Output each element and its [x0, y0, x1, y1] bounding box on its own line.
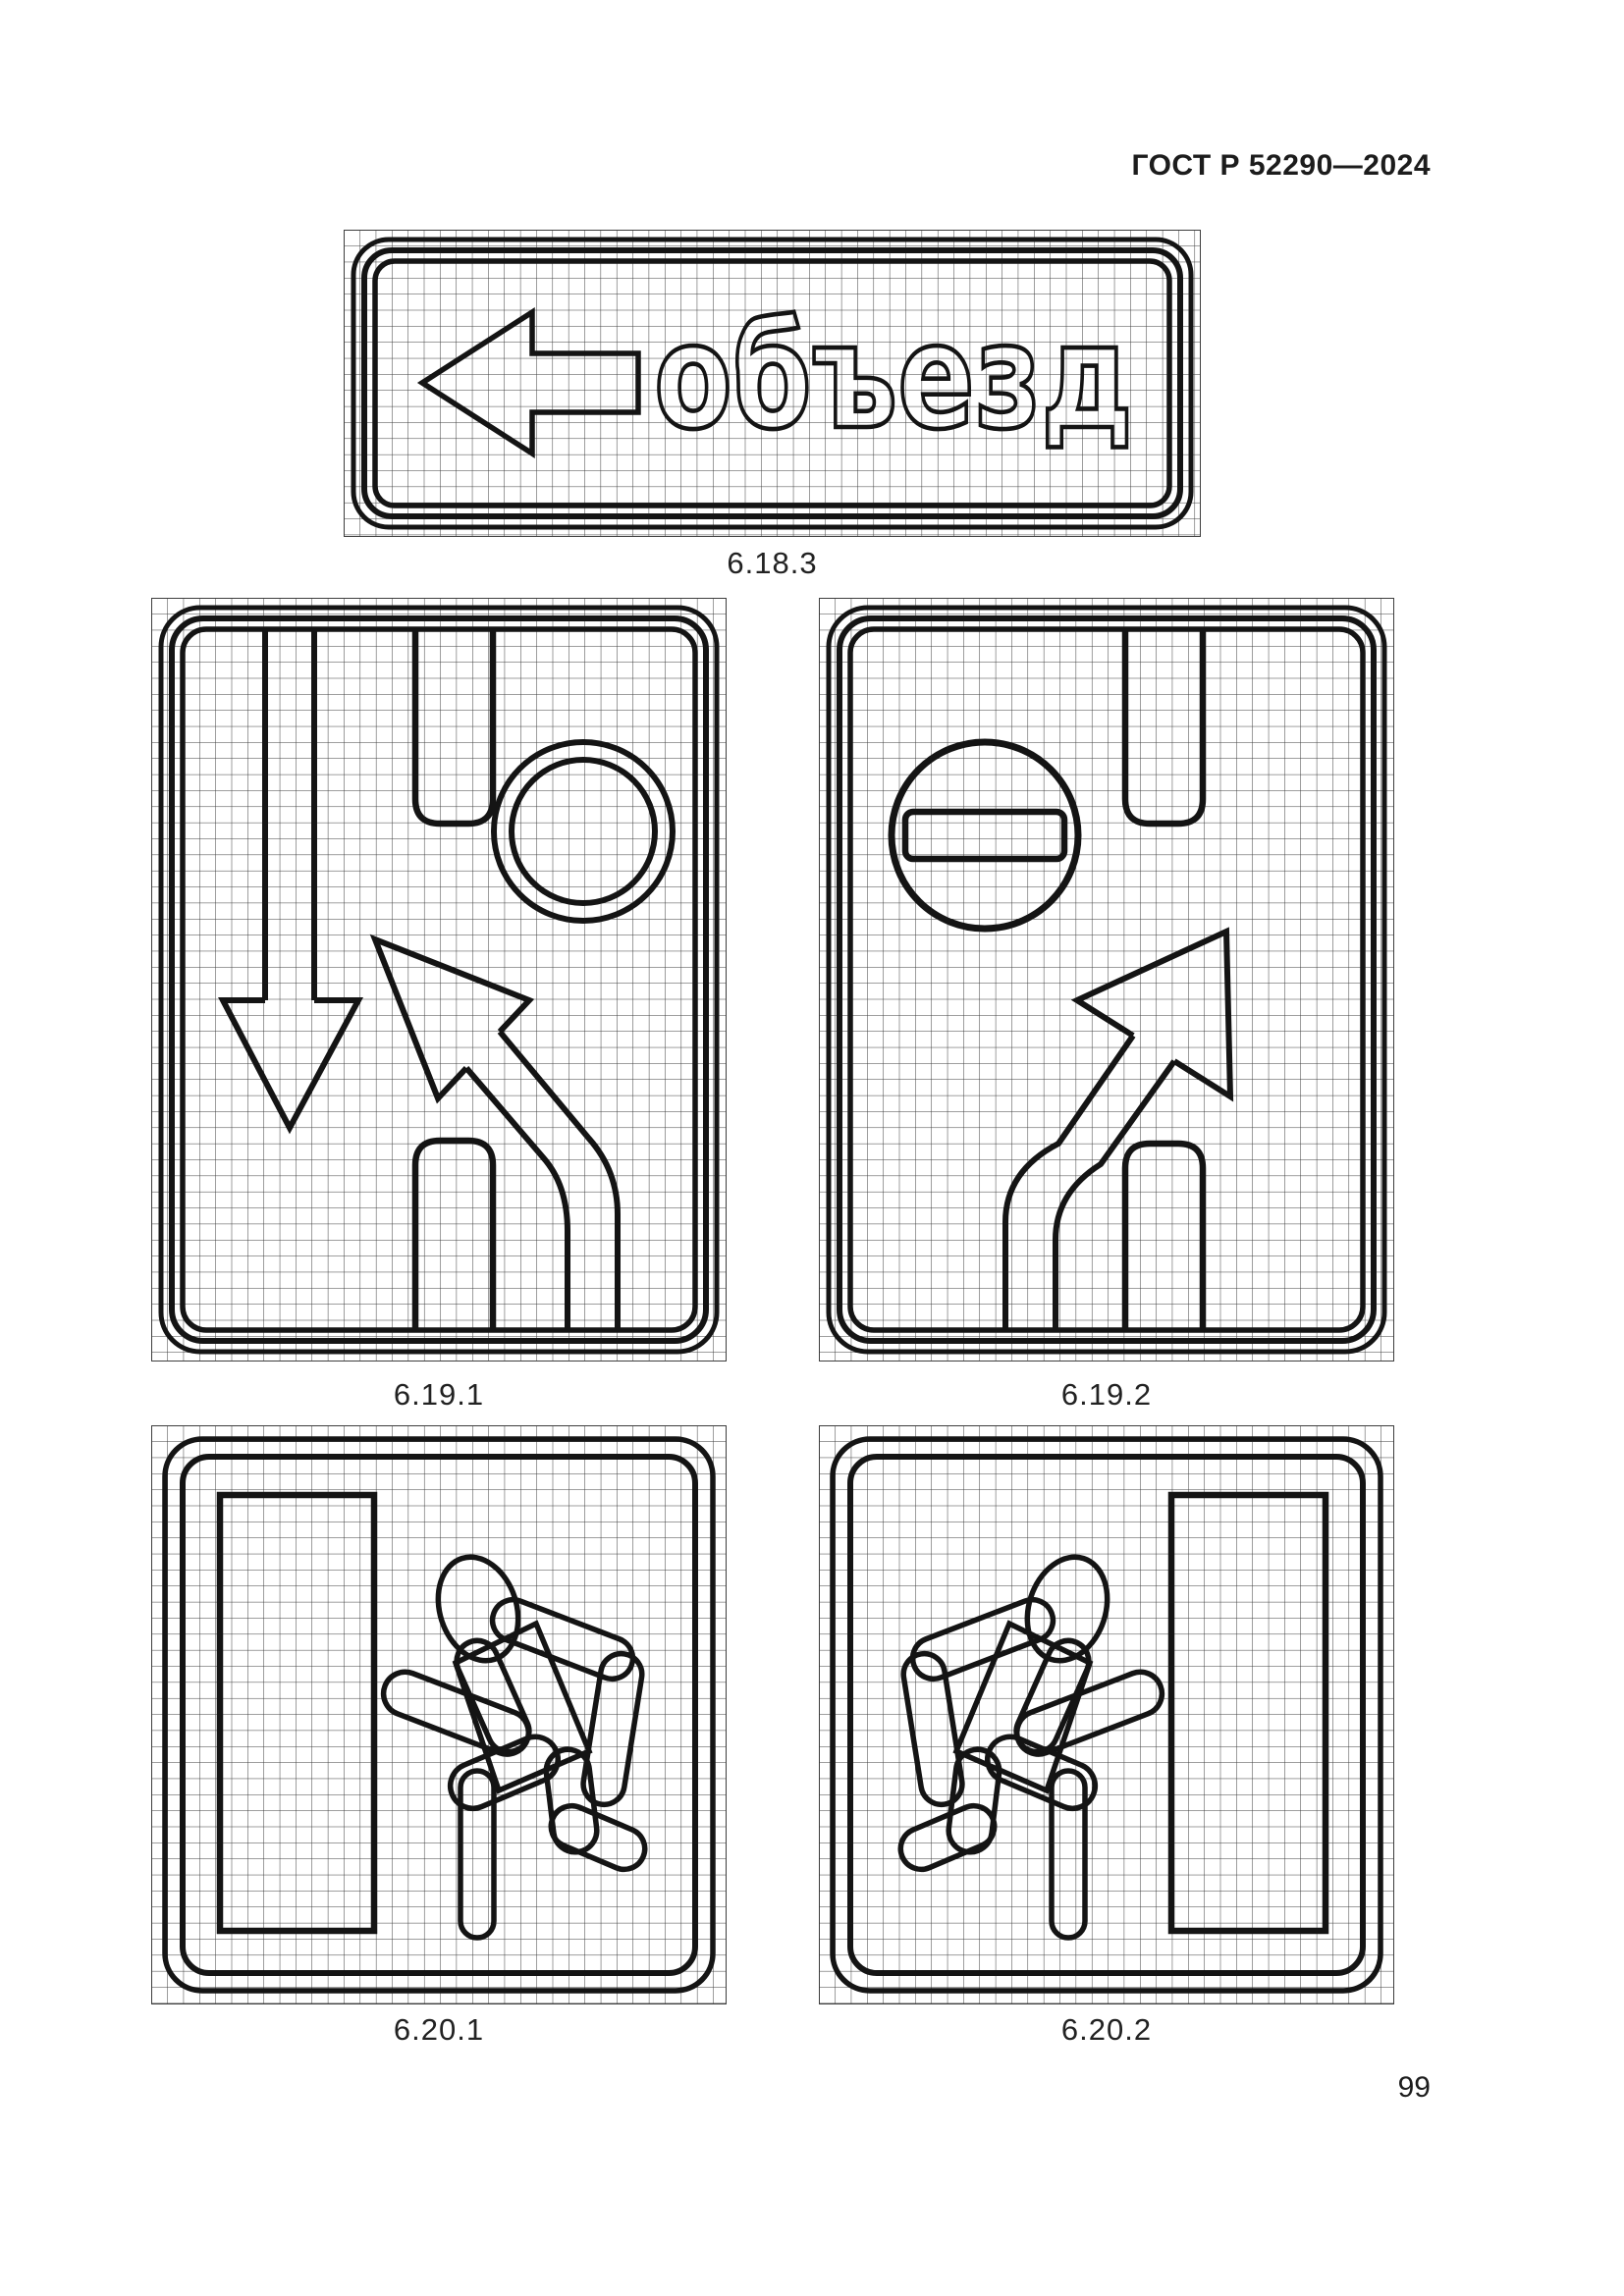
sign-6-18-3-drawing: объезд — [344, 230, 1201, 537]
figure-6-20-1: 6.20.1 — [151, 1425, 727, 2048]
figure-caption: 6.20.1 — [151, 2012, 727, 2048]
figure-6-19-1: 6.19.1 — [151, 598, 727, 1413]
figure-caption: 6.19.2 — [819, 1377, 1394, 1413]
figure-6-19-2: 6.19.2 — [819, 598, 1394, 1413]
figure-caption: 6.18.3 — [344, 546, 1201, 581]
sign-6-19-2-drawing — [819, 598, 1394, 1362]
grid-paper — [819, 1425, 1394, 2004]
standard-number: ГОСТ Р 52290—2024 — [1131, 149, 1431, 183]
grid-paper — [151, 598, 727, 1362]
figure-caption: 6.20.2 — [819, 2012, 1394, 2048]
figure-6-20-2: 6.20.2 — [819, 1425, 1394, 2048]
sign-6-20-2-drawing — [819, 1425, 1394, 2004]
document-page: ГОСТ Р 52290—2024 объезд 6.18.3 — [0, 0, 1624, 2296]
figure-caption: 6.19.1 — [151, 1377, 727, 1413]
sign-6-20-1-drawing — [151, 1425, 727, 2004]
page-number: 99 — [1398, 2071, 1431, 2105]
sign-6-19-1-drawing — [151, 598, 727, 1362]
figure-6-18-3: объезд 6.18.3 — [344, 230, 1201, 581]
grid-paper — [819, 598, 1394, 1362]
grid-paper — [151, 1425, 727, 2004]
sign-text: объезд — [654, 293, 1133, 461]
